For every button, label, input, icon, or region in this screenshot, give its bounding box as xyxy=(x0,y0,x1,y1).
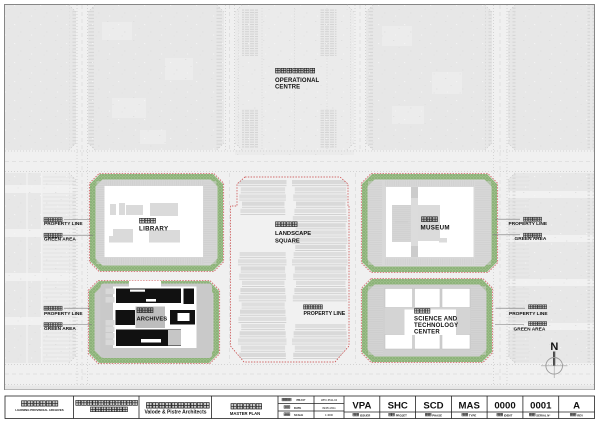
svg-text:IDENT: IDENT xyxy=(504,414,513,418)
svg-text:LANDSCAPE: LANDSCAPE xyxy=(275,231,311,237)
svg-text:PHASE: PHASE xyxy=(432,414,442,418)
svg-text:PRJ N°: PRJ N° xyxy=(297,398,306,402)
svg-text:TECHNOLOGY: TECHNOLOGY xyxy=(414,323,458,329)
svg-text:PROPERTY LINE: PROPERTY LINE xyxy=(304,311,346,317)
svg-text:CENTRE: CENTRE xyxy=(275,85,300,91)
svg-text:GREEN AREA: GREEN AREA xyxy=(44,326,76,332)
svg-text:GREEN AREA: GREEN AREA xyxy=(44,237,76,243)
svg-text:PROPERTY LINE: PROPERTY LINE xyxy=(44,311,83,317)
svg-text:1:4000: 1:4000 xyxy=(325,413,333,417)
svg-text:N: N xyxy=(550,341,558,353)
svg-text:SCIENCE AND: SCIENCE AND xyxy=(414,316,458,322)
svg-text:SERIAL N°: SERIAL N° xyxy=(536,414,550,418)
svg-text:MAS: MAS xyxy=(459,401,481,412)
svg-text:WPC.6511-04: WPC.6511-04 xyxy=(321,398,338,402)
svg-text:CENTER: CENTER xyxy=(414,329,440,335)
svg-text:0001: 0001 xyxy=(530,401,552,412)
svg-text:OPERATIONAL: OPERATIONAL xyxy=(275,78,320,84)
svg-text:MUSEUM: MUSEUM xyxy=(421,224,450,231)
svg-text:SCD: SCD xyxy=(423,401,443,412)
svg-text:DATE: DATE xyxy=(294,406,301,410)
svg-text:Valode & Pistre Architects: Valode & Pistre Architects xyxy=(144,409,206,415)
svg-text:PROPERTY LINE: PROPERTY LINE xyxy=(44,221,83,227)
svg-text:SHC: SHC xyxy=(388,401,408,412)
svg-text:GREEN AREA: GREEN AREA xyxy=(515,236,547,242)
svg-text:SQUARE: SQUARE xyxy=(275,239,300,245)
svg-text:TYPE: TYPE xyxy=(469,414,476,418)
svg-text:MASTER PLAN: MASTER PLAN xyxy=(230,411,260,416)
svg-text:REV: REV xyxy=(577,414,583,418)
svg-text:PROPERTY LINE: PROPERTY LINE xyxy=(509,221,548,227)
svg-text:VPA: VPA xyxy=(352,401,371,412)
svg-text:PROJET: PROJET xyxy=(396,414,407,418)
svg-text:0000: 0000 xyxy=(494,401,515,412)
svg-text:GREEN AREA: GREEN AREA xyxy=(514,326,546,332)
svg-text:ARCHIVES: ARCHIVES xyxy=(137,317,168,323)
svg-text:LIAONING PROVINCIAL ARCHIVES: LIAONING PROVINCIAL ARCHIVES xyxy=(15,408,63,412)
svg-text:SCALE: SCALE xyxy=(294,413,303,417)
svg-text:LIBRARY: LIBRARY xyxy=(139,225,169,232)
svg-text:ISSUER: ISSUER xyxy=(360,414,370,418)
svg-text:A: A xyxy=(573,401,580,412)
svg-text:09/05 /2011: 09/05 /2011 xyxy=(322,406,336,410)
svg-text:PROPERTY LINE: PROPERTY LINE xyxy=(509,311,548,317)
